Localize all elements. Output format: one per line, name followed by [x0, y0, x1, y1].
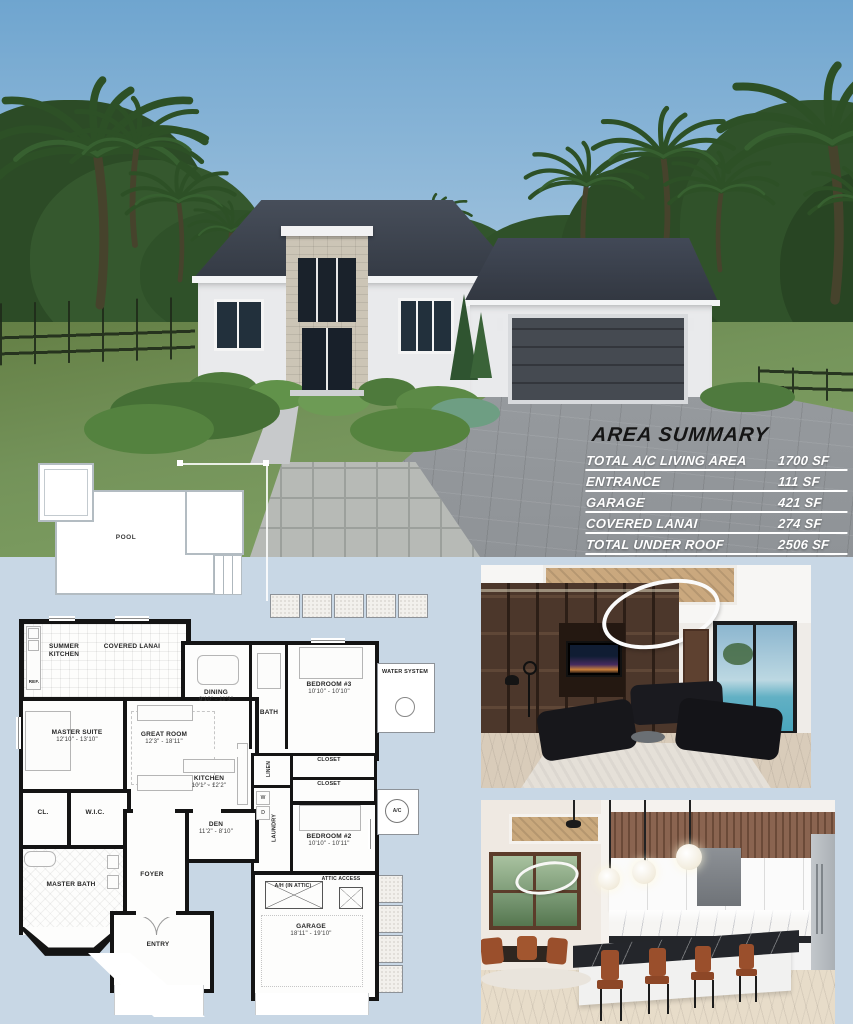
sconce-light: [497, 318, 503, 331]
shower: [257, 653, 281, 689]
ref-label: REF.: [23, 679, 45, 685]
site-plan: POOL: [28, 452, 278, 604]
area-label: COVERED LANAI: [586, 516, 779, 531]
bar-stool: [601, 950, 619, 980]
globe-pendant: [598, 868, 620, 890]
area-summary: AREA SUMMARY TOTAL A/C LIVING AREA 1700 …: [586, 424, 848, 555]
black-pendant: [566, 820, 581, 828]
window: [398, 298, 454, 354]
pool-deck: [185, 490, 244, 555]
wall-segment: [249, 645, 252, 749]
garage-door: [508, 314, 688, 404]
water-tank: [395, 697, 415, 717]
paver-square: [375, 965, 403, 993]
room-label: GARAGE 18'11" - 19'10": [269, 923, 353, 939]
palm-tree: [800, 150, 853, 290]
stool-leg: [600, 989, 602, 1021]
tv-screen: [570, 645, 618, 673]
entry-parapet-cap: [281, 226, 373, 236]
globe-pendant: [676, 844, 702, 870]
stool-leg: [755, 976, 757, 1002]
sofa: [137, 705, 193, 721]
sink: [107, 855, 119, 869]
fridge: [811, 834, 835, 984]
property-line: [180, 463, 268, 465]
bar-stool: [739, 944, 754, 969]
garden-bed: [84, 404, 214, 454]
paver-square: [398, 594, 428, 618]
bar-stool-seat: [691, 972, 714, 980]
wall-segment: [285, 645, 288, 749]
entry-step: [290, 390, 364, 396]
bed: [299, 647, 363, 679]
grill: [28, 628, 39, 639]
ac-unit: A/C: [385, 799, 409, 823]
paver-square: [375, 875, 403, 903]
room-label: KITCHEN 10'1" - 12'2": [181, 775, 237, 791]
room-covered-lanai: [19, 619, 191, 707]
spa-inner: [44, 469, 88, 516]
sink: [28, 640, 39, 651]
room-label: W.I.C.: [73, 809, 117, 817]
palm-through-glass: [723, 643, 753, 665]
bed: [299, 805, 361, 831]
area-label: GARAGE: [586, 495, 779, 510]
room-label: LAUNDRY: [269, 803, 281, 853]
wood-tray-ceiling: [509, 814, 601, 844]
corner-marker: [177, 460, 183, 466]
pendant-cord: [609, 800, 611, 870]
attic-access-box: [339, 887, 363, 909]
garage-hip-roof: [462, 238, 720, 306]
room-label: CLOSET: [291, 781, 367, 788]
pool-label: POOL: [86, 534, 166, 541]
room-label: BEDROOM #2 10'10" - 10'11": [291, 833, 367, 849]
globe-pendant: [632, 860, 656, 884]
pendant-cord: [644, 800, 646, 862]
garden-bed: [350, 408, 470, 452]
entry-double-door: [302, 328, 352, 390]
fridge-handle: [816, 864, 818, 934]
area-summary-row: COVERED LANAI 274 SF: [585, 516, 848, 534]
paver-square: [334, 594, 364, 618]
sconce-light: [688, 318, 694, 331]
room-label: GREAT ROOM 12'3" - 18'11": [127, 731, 201, 747]
area-label: ENTRANCE: [586, 474, 779, 489]
paver-square: [375, 935, 403, 963]
corner-marker: [263, 460, 269, 466]
dining-chair: [517, 936, 537, 960]
area-summary-row: GARAGE 421 SF: [585, 495, 848, 513]
room-label: ATTIC ACCESS: [315, 876, 367, 883]
room-label: BEDROOM #3 10'10" - 10'10": [291, 681, 367, 697]
room-label: CL.: [23, 809, 63, 817]
bathtub: [24, 851, 56, 867]
window-gap: [16, 717, 21, 749]
room-label: MASTER BATH: [31, 881, 111, 889]
room-label: A/H (IN ATTIC): [265, 883, 321, 890]
room-label: DINING 9'10" - 11'3": [185, 689, 247, 705]
stool-leg: [739, 976, 741, 1002]
room-label: DEN 11'2" - 8'10": [185, 821, 247, 837]
stool-leg: [712, 980, 714, 1008]
spa: [38, 463, 94, 522]
dining-chair: [546, 937, 568, 965]
window-gap: [311, 638, 345, 643]
area-summary-row: TOTAL A/C LIVING AREA 1700 SF: [585, 453, 848, 471]
kitchen-island: [183, 759, 235, 773]
room-label: LINEN: [263, 757, 275, 781]
window-gap: [49, 616, 75, 621]
area-value: 421 SF: [778, 495, 849, 510]
floor-lamp-shade: [523, 661, 537, 675]
bar-stool-seat: [597, 980, 623, 989]
room-foyer: [123, 809, 189, 919]
room-label: FOYER: [127, 871, 177, 879]
room-label: COVERED LANAI: [97, 643, 167, 651]
nook-rug: [481, 968, 591, 990]
area-summary-row: ENTRANCE 111 SF: [585, 474, 848, 492]
bay-window-floor: [24, 927, 118, 952]
bar-stool: [649, 948, 666, 976]
area-value: 274 SF: [778, 516, 849, 531]
bar-stool-seat: [645, 976, 669, 984]
open-passage: [193, 807, 221, 815]
area-value: 111 SF: [778, 474, 849, 489]
range-hood: [697, 848, 741, 906]
dining-table: [197, 655, 239, 685]
washer: W: [256, 791, 270, 805]
paver-square: [366, 594, 396, 618]
stool-leg: [648, 984, 650, 1014]
dining-chair: [481, 937, 504, 965]
room-label: CLOSET: [291, 757, 367, 764]
area-rug: [131, 711, 215, 785]
living-room-photo: [481, 565, 811, 788]
hedge: [700, 382, 795, 412]
stool-leg: [620, 989, 622, 1021]
open-passage: [133, 805, 175, 813]
area-summary-title: AREA SUMMARY: [591, 424, 849, 447]
floor-lamp-pole: [528, 673, 530, 717]
open-passage: [187, 749, 243, 757]
bar-stool: [695, 946, 711, 972]
room-label: SUMMER KITCHEN: [39, 643, 89, 660]
bar-stool-seat: [736, 969, 757, 976]
tv: [566, 641, 622, 677]
brochure-canvas: AREA SUMMARY TOTAL A/C LIVING AREA 1700 …: [0, 0, 853, 1024]
room-label: WATER SYSTEM: [379, 669, 431, 676]
pendant-cord: [689, 800, 691, 846]
garage-apron: [255, 993, 369, 1015]
window-gap: [368, 819, 373, 849]
paver-square: [375, 905, 403, 933]
fridge-handle: [821, 864, 823, 934]
area-summary-row: TOTAL UNDER ROOF 2506 SF: [585, 537, 848, 555]
paver-square: [270, 594, 300, 618]
room-wic: [67, 789, 131, 853]
marble-backsplash: [609, 910, 835, 938]
window: [214, 299, 264, 351]
stool-leg: [667, 984, 669, 1014]
window-gap: [115, 616, 149, 621]
room-label: MASTER SUITE 12'10" - 13'10": [41, 729, 113, 745]
area-label: TOTAL A/C LIVING AREA: [586, 453, 779, 468]
area-value: 2506 SF: [778, 537, 849, 552]
paver-square: [302, 594, 332, 618]
area-label: TOTAL UNDER ROOF: [586, 537, 779, 552]
stool-leg: [694, 980, 696, 1008]
area-value: 1700 SF: [778, 453, 849, 468]
pool-steps: [213, 555, 242, 595]
table-lamp: [505, 675, 519, 685]
entry-transom-glass: [298, 258, 356, 322]
room-label: ENTRY: [130, 941, 186, 949]
property-line: [266, 463, 268, 601]
dryer: D: [256, 806, 270, 820]
floor-plan: SUMMER KITCHEN COVERED LANAI REF. DINING…: [15, 593, 462, 1017]
room-label: BATH: [253, 709, 285, 717]
kitchen-photo: [481, 800, 835, 1024]
coffee-table: [631, 731, 665, 743]
pendant-cord: [573, 800, 575, 822]
entry-door-opening: [136, 909, 176, 917]
